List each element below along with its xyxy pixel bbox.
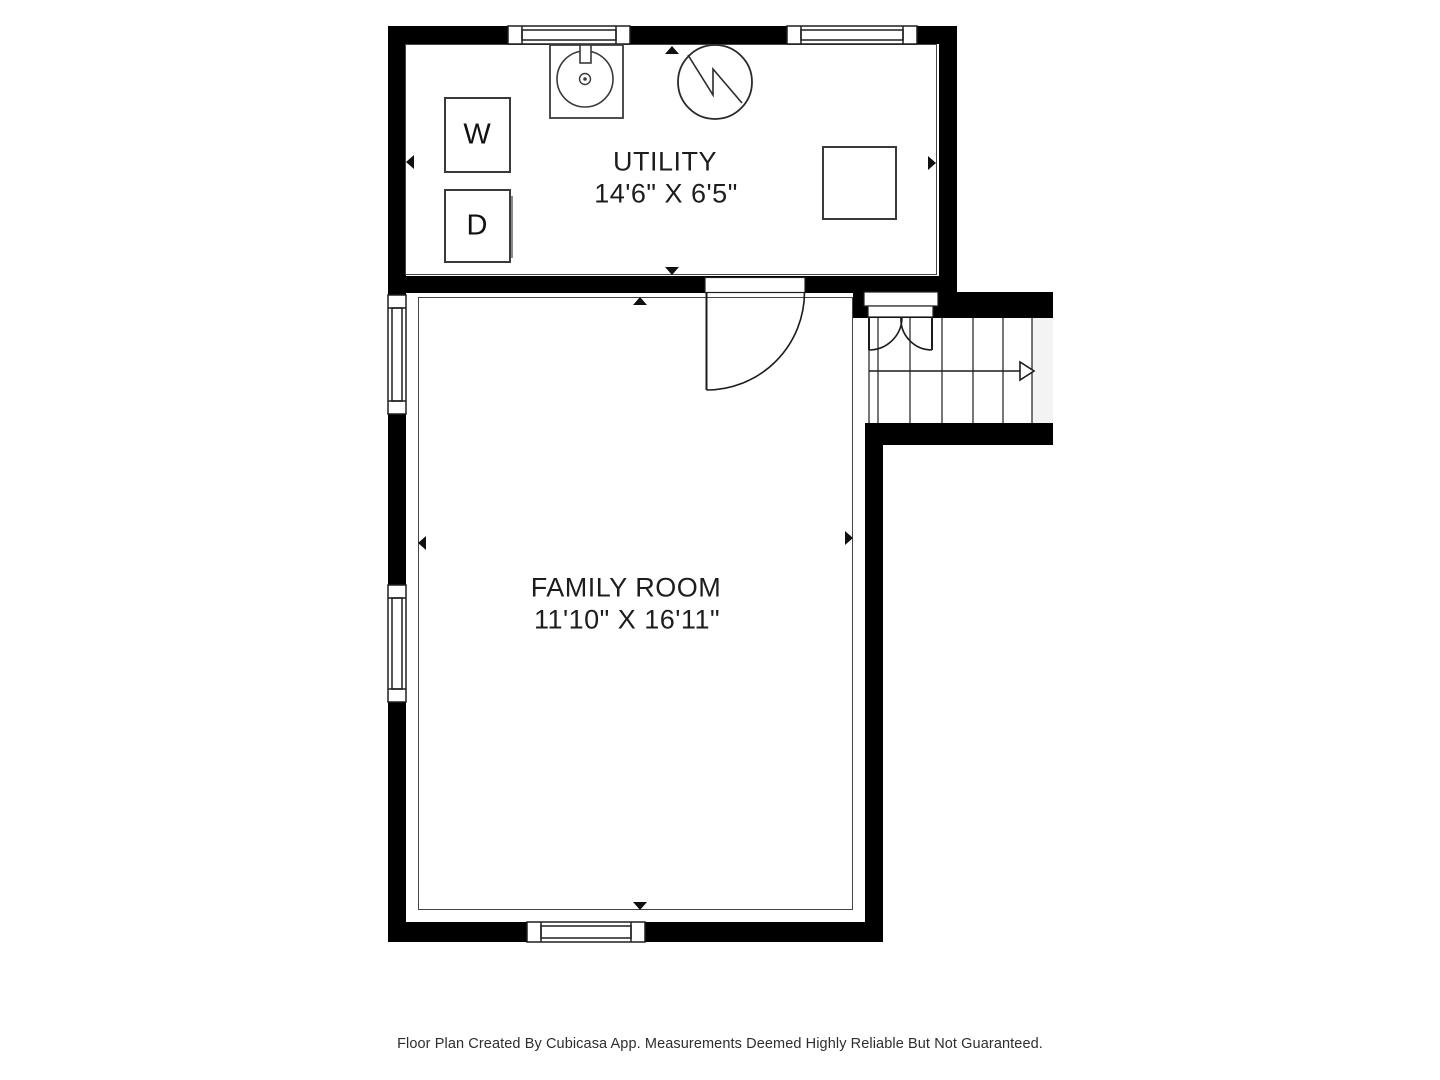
room-dimensions-family-room: 11'10" X 16'11" <box>534 607 720 634</box>
sink-icon <box>550 45 623 118</box>
wall-stair-bottom <box>865 423 1053 445</box>
footer-disclaimer: Floor Plan Created By Cubicasa App. Meas… <box>0 1036 1440 1052</box>
water-heater-icon <box>678 45 752 119</box>
wall-utility-right <box>939 26 957 293</box>
double-door-swing-icon <box>864 292 938 350</box>
dimension-arrow-icon <box>406 155 414 169</box>
dimension-arrow-icon <box>633 902 647 910</box>
dimension-arrow-icon <box>928 156 936 170</box>
room-dimensions-utility: 14'6" X 6'5" <box>594 181 738 208</box>
door-swing-icon <box>705 278 805 391</box>
stair-direction-arrow-icon <box>869 362 1034 380</box>
dimension-arrow-icon <box>665 267 679 275</box>
window-icon <box>527 922 645 942</box>
wall-utility-family-divider <box>388 276 957 293</box>
window-icon <box>508 26 630 44</box>
dimension-arrow-icon <box>418 536 426 550</box>
wall-family-right <box>865 423 883 942</box>
wall-left <box>388 26 406 942</box>
dimension-arrow-icon <box>845 531 853 545</box>
washer-label: W <box>463 121 490 150</box>
family-room-outline <box>419 298 853 910</box>
window-icon <box>787 26 917 44</box>
dryer-label: D <box>467 212 488 241</box>
stair-cut-region <box>1032 318 1053 423</box>
window-icon <box>388 295 406 414</box>
window-icon <box>388 585 406 702</box>
room-name-utility: UTILITY <box>613 149 717 176</box>
appliance-box <box>823 147 896 219</box>
dimension-arrow-icon <box>665 46 679 54</box>
floor-plan-drawing <box>0 0 1440 1080</box>
dimension-arrow-icon <box>633 297 647 305</box>
floor-plan-canvas: W D UTILITY 14'6" X 6'5" FAMILY ROOM 11'… <box>0 0 1440 1080</box>
room-name-family-room: FAMILY ROOM <box>531 575 722 602</box>
